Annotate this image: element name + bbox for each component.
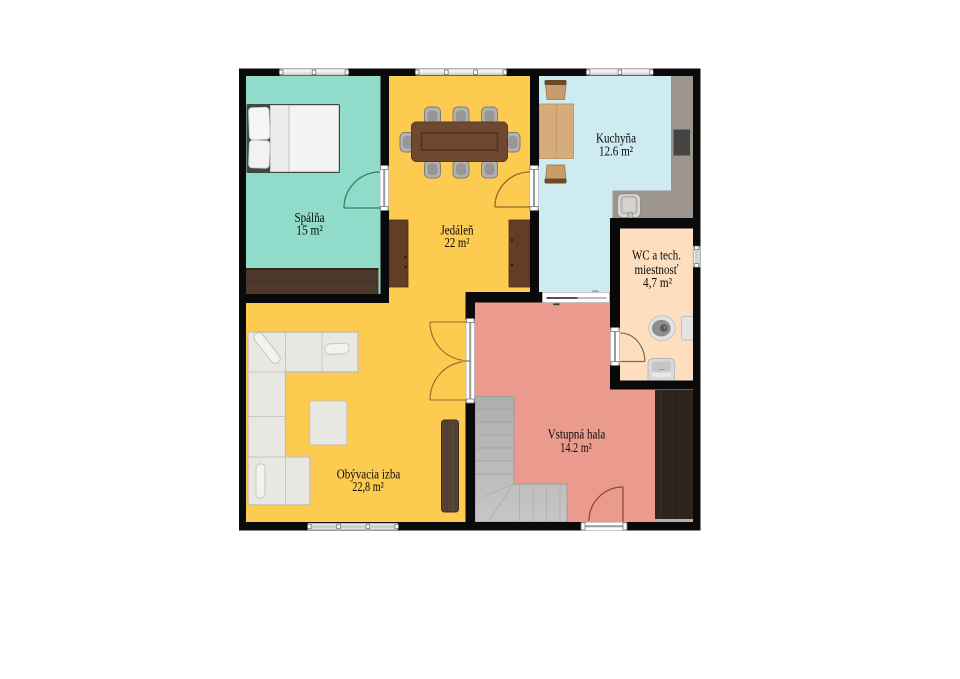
svg-text:14.2 m²: 14.2 m² [560, 440, 592, 455]
svg-text:22 m²: 22 m² [445, 235, 470, 250]
svg-text:4,7 m²: 4,7 m² [643, 275, 672, 290]
svg-text:22,8 m²: 22,8 m² [352, 479, 384, 494]
svg-text:15 m²: 15 m² [296, 223, 323, 238]
svg-text:WC a tech.: WC a tech. [632, 248, 681, 263]
svg-text:12.6 m²: 12.6 m² [599, 144, 633, 159]
